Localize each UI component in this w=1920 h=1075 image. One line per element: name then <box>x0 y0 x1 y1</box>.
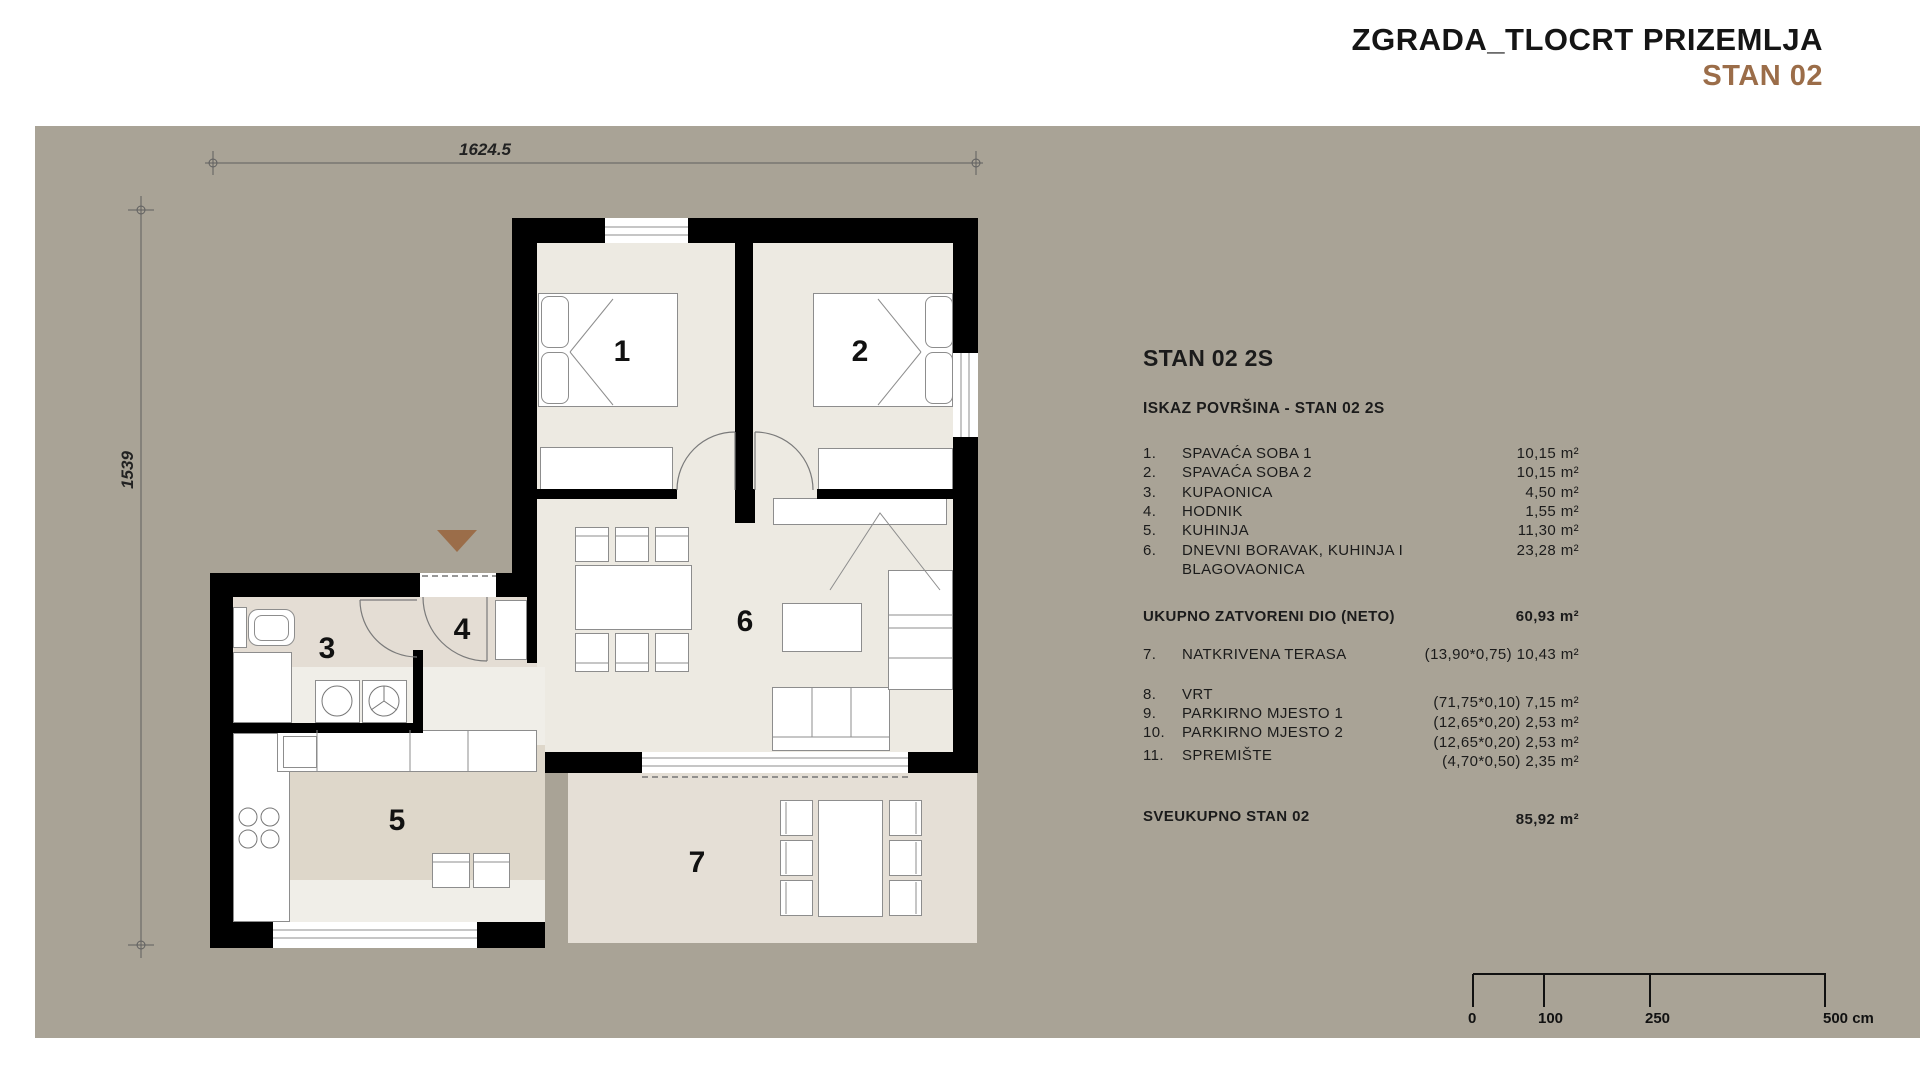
coffee-table <box>782 603 862 652</box>
dining-chair <box>615 527 649 562</box>
row-name: KUHINJA <box>1182 522 1249 539</box>
scale-tick <box>1472 974 1474 1007</box>
room-label-1: 1 <box>614 335 631 369</box>
row-name: HODNIK <box>1182 503 1243 520</box>
entrance-opening <box>420 573 496 597</box>
row-name: SPAVAĆA SOBA 2 <box>1182 464 1312 481</box>
hall-closet <box>495 600 527 660</box>
bathroom-vanity <box>233 652 292 723</box>
row-name-line2: BLAGOVAONICA <box>1182 561 1305 578</box>
dimension-height-label: 1539 <box>118 440 138 500</box>
dining-chair <box>615 633 649 672</box>
toilet-bowl-inner <box>254 615 289 641</box>
row-no: 11. <box>1143 747 1164 764</box>
kitchen-sink <box>283 736 317 768</box>
bed-1-pillow <box>541 352 569 404</box>
page-subtitle: STAN 02 <box>1352 60 1823 93</box>
kitchen-stool <box>473 853 510 888</box>
scale-label-100: 100 <box>1538 1010 1563 1027</box>
window-living-terrace <box>642 752 908 773</box>
row-name: SPREMIŠTE <box>1182 747 1272 764</box>
window-bedroom-2 <box>953 353 978 437</box>
row-value: 1,55 m² <box>1525 503 1579 520</box>
wall-top <box>512 218 978 243</box>
row-name: NATKRIVENA TERASA <box>1182 646 1347 663</box>
row-no: 8. <box>1143 686 1156 703</box>
row-value: (12,65*0,20) 2,53 m² <box>1433 734 1579 751</box>
dining-chair <box>655 633 689 672</box>
kitchen-stool <box>432 853 470 888</box>
row-value: 10,15 m² <box>1517 445 1579 462</box>
sofa <box>772 687 890 751</box>
entrance-arrow-icon <box>437 530 477 552</box>
dining-chair <box>575 633 609 672</box>
bed-1-pillow <box>541 296 569 348</box>
row-value: (71,75*0,10) 7,15 m² <box>1433 694 1579 711</box>
bed-2-pillow <box>925 296 953 348</box>
row-no: 2. <box>1143 464 1156 481</box>
toilet-tank <box>233 607 247 648</box>
row-no: 9. <box>1143 705 1156 722</box>
bed-2-pillow <box>925 352 953 404</box>
wall-door-stub <box>735 489 755 523</box>
row-no: 7. <box>1143 646 1156 663</box>
scale-tick <box>1649 974 1651 1007</box>
total-value: 85,92 m² <box>1516 811 1579 828</box>
room-label-5: 5 <box>389 804 406 838</box>
room-label-6: 6 <box>737 605 754 639</box>
scale-tick <box>1824 974 1826 1007</box>
area-table: STAN 02 2S ISKAZ POVRŠINA - STAN 02 2S 1… <box>1143 340 1579 840</box>
dining-chair <box>575 527 609 562</box>
wall-closet-stub <box>527 597 537 663</box>
dimension-width-label: 1624.5 <box>420 140 550 160</box>
window-bedroom-1 <box>605 218 688 243</box>
panel-subheading: ISKAZ POVRŠINA - STAN 02 2S <box>1143 400 1385 418</box>
row-value: 4,50 m² <box>1525 484 1579 501</box>
room-label-3: 3 <box>319 632 336 666</box>
title-block: ZGRADA_TLOCRT PRIZEMLJA STAN 02 <box>1352 22 1823 93</box>
terrace-chair <box>889 880 922 916</box>
wall-bedroom2-bottom <box>817 489 953 499</box>
row-no: 4. <box>1143 503 1156 520</box>
terrace-chair <box>780 800 813 836</box>
row-no: 5. <box>1143 522 1156 539</box>
row-name: PARKIRNO MJESTO 2 <box>1182 724 1343 741</box>
subtotal-value: 60,93 m² <box>1516 608 1579 625</box>
terrace-chair <box>780 840 813 876</box>
row-name: SPAVAĆA SOBA 1 <box>1182 445 1312 462</box>
wall-bedroom-divider <box>735 243 753 490</box>
cabinet-living-right <box>888 570 953 690</box>
wardrobe-bedroom-1 <box>540 447 673 490</box>
row-name: VRT <box>1182 686 1213 703</box>
row-no: 6. <box>1143 542 1156 559</box>
scale-label-250: 250 <box>1645 1010 1670 1027</box>
terrace-chair <box>889 840 922 876</box>
terrace-chair <box>780 880 813 916</box>
panel-heading: STAN 02 2S <box>1143 345 1273 372</box>
scale-tick <box>1543 974 1545 1007</box>
row-name: PARKIRNO MJESTO 1 <box>1182 705 1343 722</box>
room-label-7: 7 <box>689 846 706 880</box>
row-no: 10. <box>1143 724 1165 741</box>
washing-machine <box>315 680 360 723</box>
wall-living-bottom-left <box>545 752 642 773</box>
window-kitchen <box>273 922 477 948</box>
total-label: SVEUKUPNO STAN 02 <box>1143 808 1310 825</box>
closet-living-top <box>773 498 947 525</box>
wall-kitchen-left <box>210 573 233 948</box>
row-value: 10,15 m² <box>1517 464 1579 481</box>
subtotal-label: UKUPNO ZATVORENI DIO (NETO) <box>1143 608 1395 625</box>
row-value: 23,28 m² <box>1517 542 1579 559</box>
scale-label-500: 500 cm <box>1823 1010 1874 1027</box>
page-title: ZGRADA_TLOCRT PRIZEMLJA <box>1352 22 1823 58</box>
row-value: (12,65*0,20) 2,53 m² <box>1433 714 1579 731</box>
wall-right <box>953 218 978 752</box>
wall-left-upper <box>512 218 537 597</box>
row-name: DNEVNI BORAVAK, KUHINJA I <box>1182 542 1403 559</box>
room-label-4: 4 <box>454 613 471 647</box>
wardrobe-bedroom-2 <box>818 448 953 490</box>
row-name: KUPAONICA <box>1182 484 1273 501</box>
wall-bathroom-right <box>413 650 423 733</box>
washing-machine <box>362 680 407 723</box>
dining-table <box>575 565 692 630</box>
row-value: 11,30 m² <box>1518 522 1579 539</box>
row-value: (13,90*0,75) 10,43 m² <box>1425 646 1579 663</box>
wall-living-bottom-right <box>908 752 978 773</box>
row-no: 3. <box>1143 484 1156 501</box>
terrace-chair <box>889 800 922 836</box>
row-no: 1. <box>1143 445 1156 462</box>
scale-label-0: 0 <box>1468 1010 1476 1027</box>
dining-chair <box>655 527 689 562</box>
wall-bedroom1-bottom <box>537 489 677 499</box>
wall-bathroom-bottom <box>233 723 423 733</box>
row-value: (4,70*0,50) 2,35 m² <box>1442 753 1579 770</box>
room-label-2: 2 <box>852 335 869 369</box>
terrace-table <box>818 800 883 917</box>
